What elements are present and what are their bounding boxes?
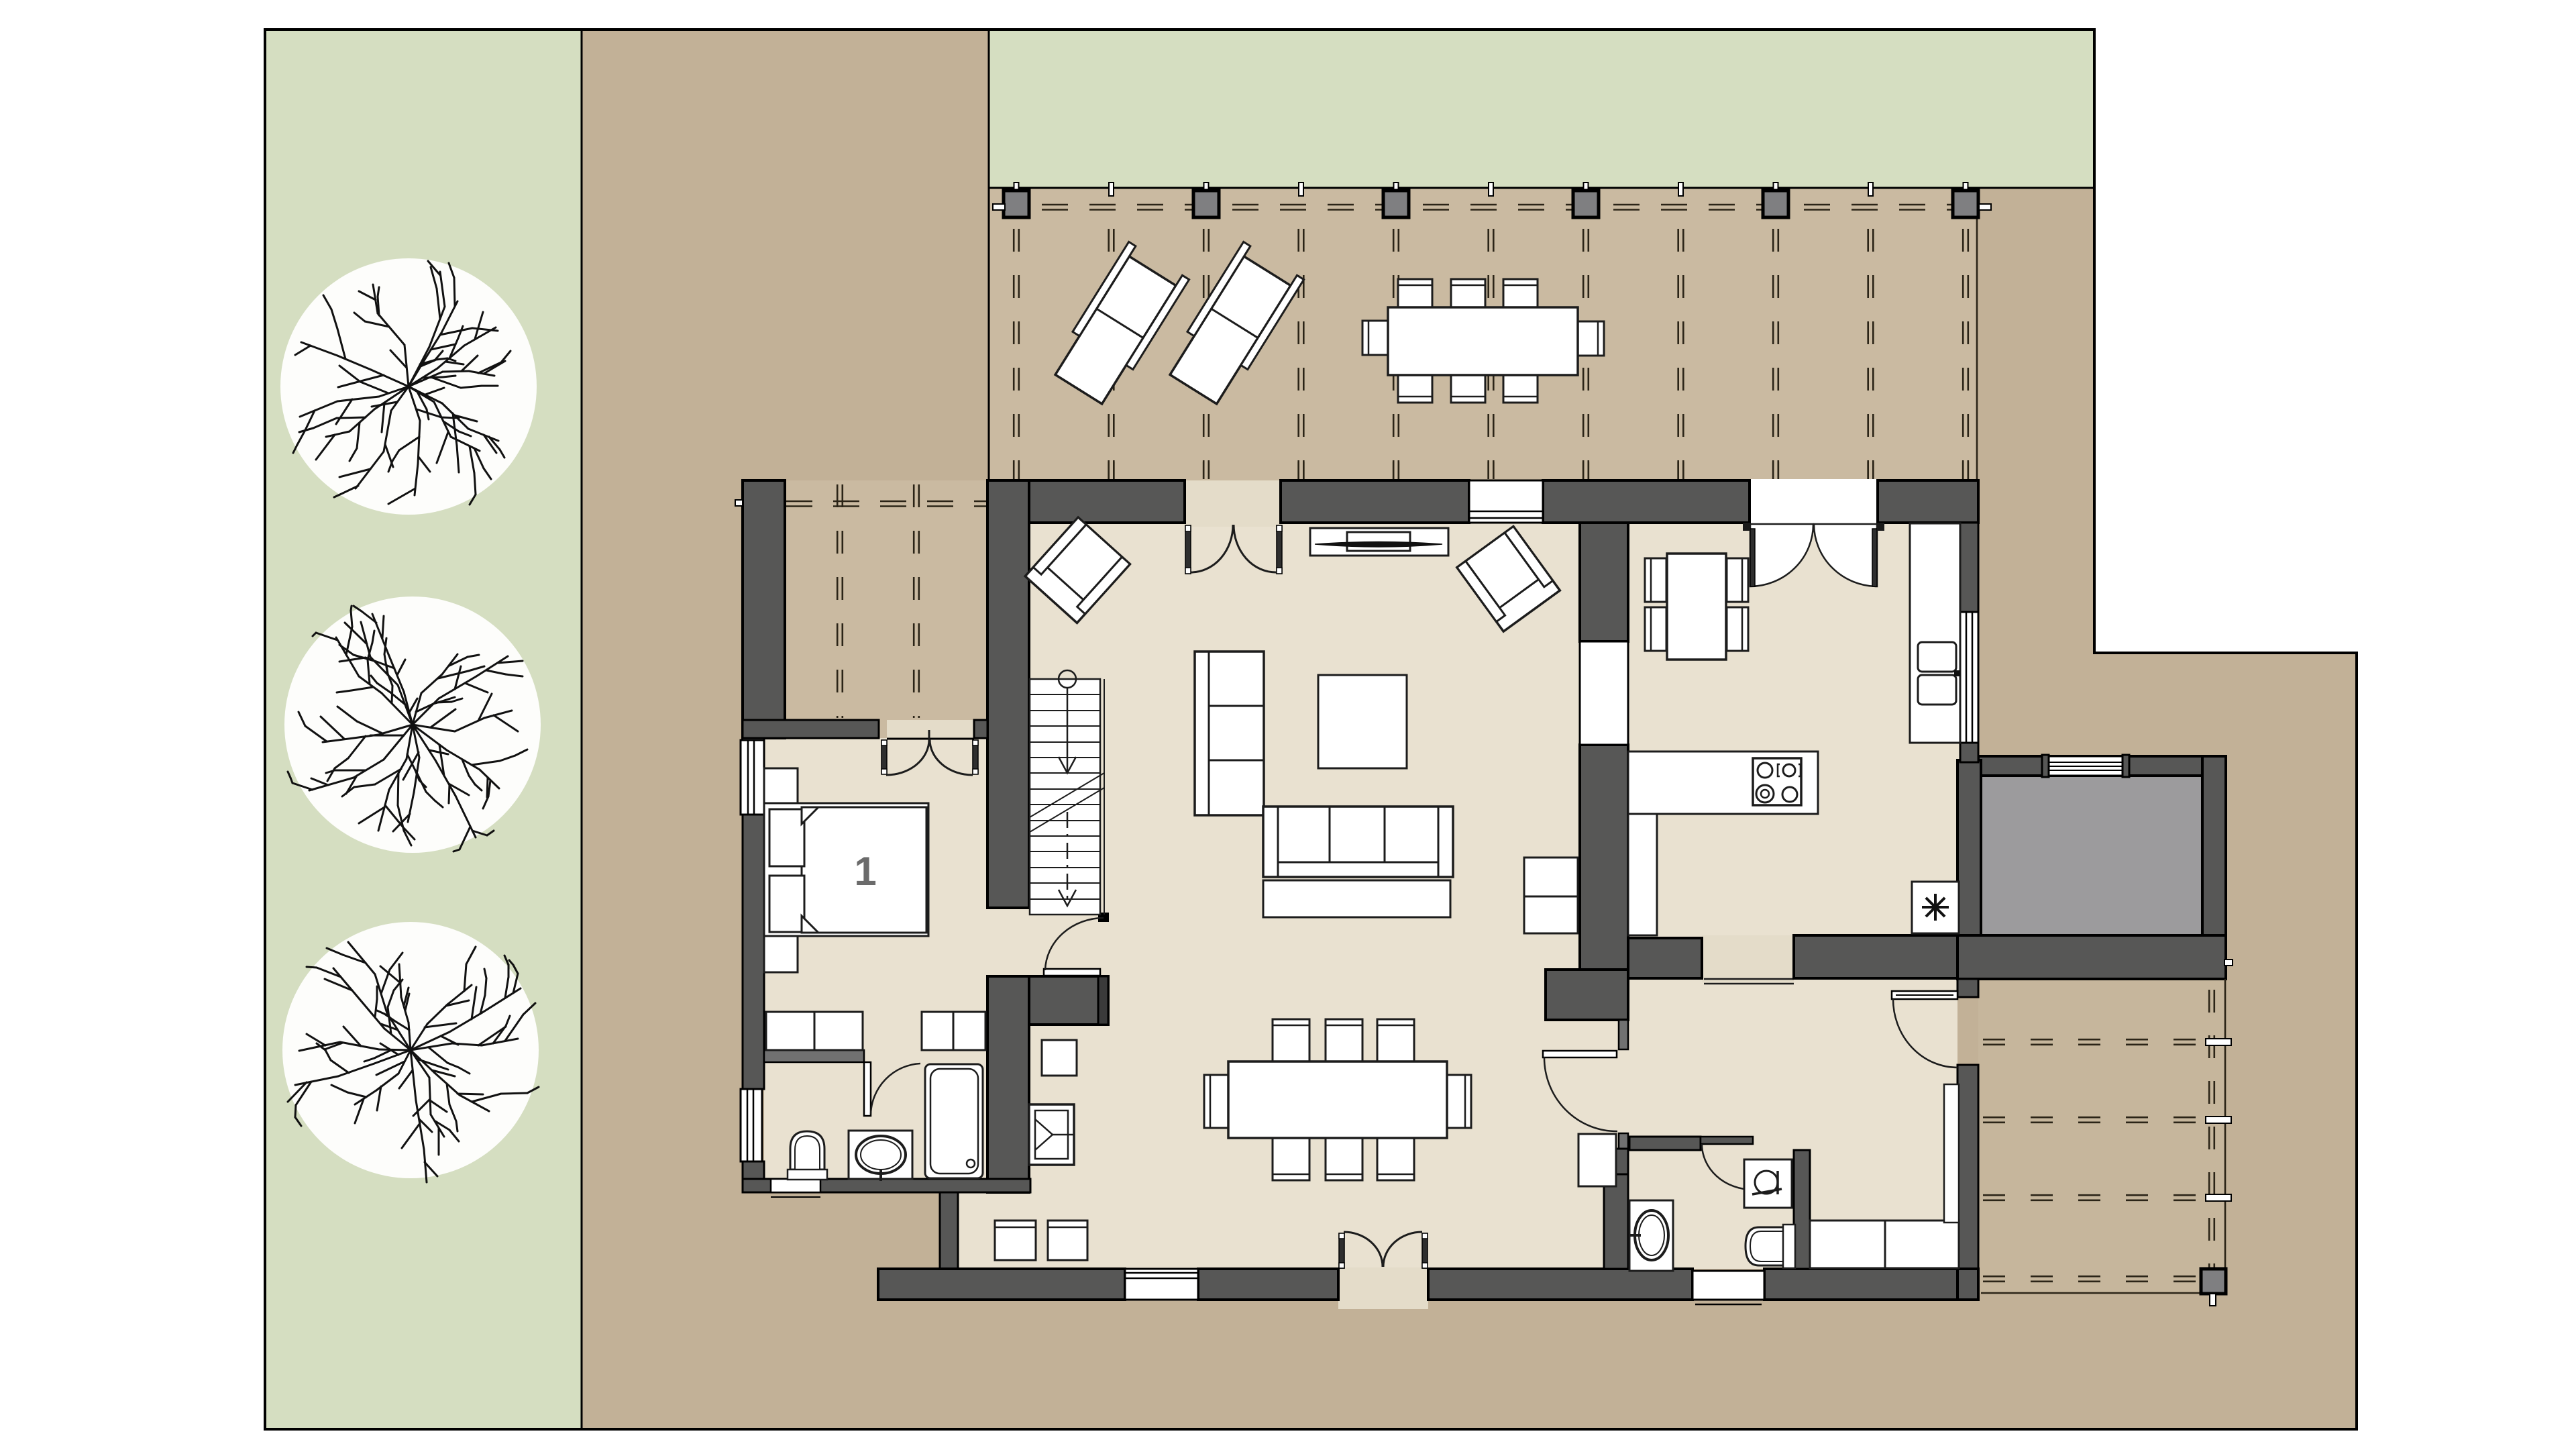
svg-text:1: 1	[854, 849, 876, 894]
